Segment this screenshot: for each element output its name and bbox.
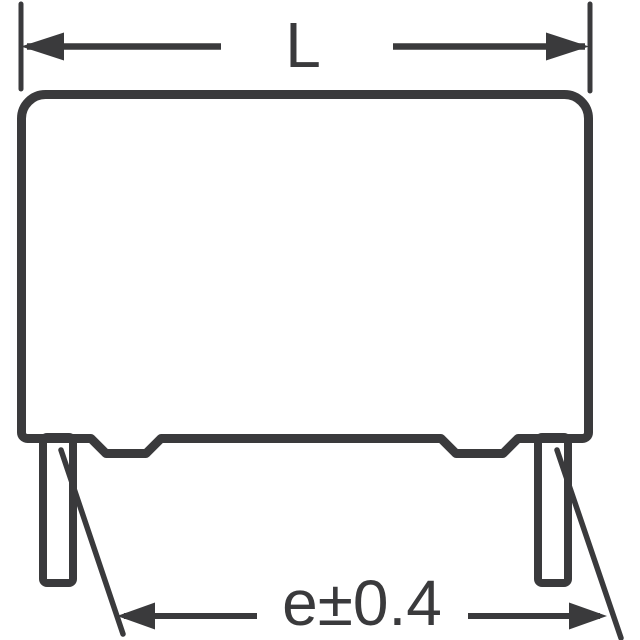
right-lead [538, 437, 568, 583]
capacitor-body-outline [22, 95, 589, 454]
left-lead [43, 437, 73, 583]
length-label: L [285, 9, 321, 81]
capacitor-outline-drawing: L e±0.4 [0, 0, 640, 640]
pitch-label: e±0.4 [282, 567, 442, 639]
diagram-canvas: L e±0.4 [0, 0, 640, 640]
pitch-arrowhead-right-icon [569, 603, 607, 630]
length-arrowhead-right-icon [546, 33, 589, 61]
length-arrowhead-left-icon [21, 33, 64, 61]
